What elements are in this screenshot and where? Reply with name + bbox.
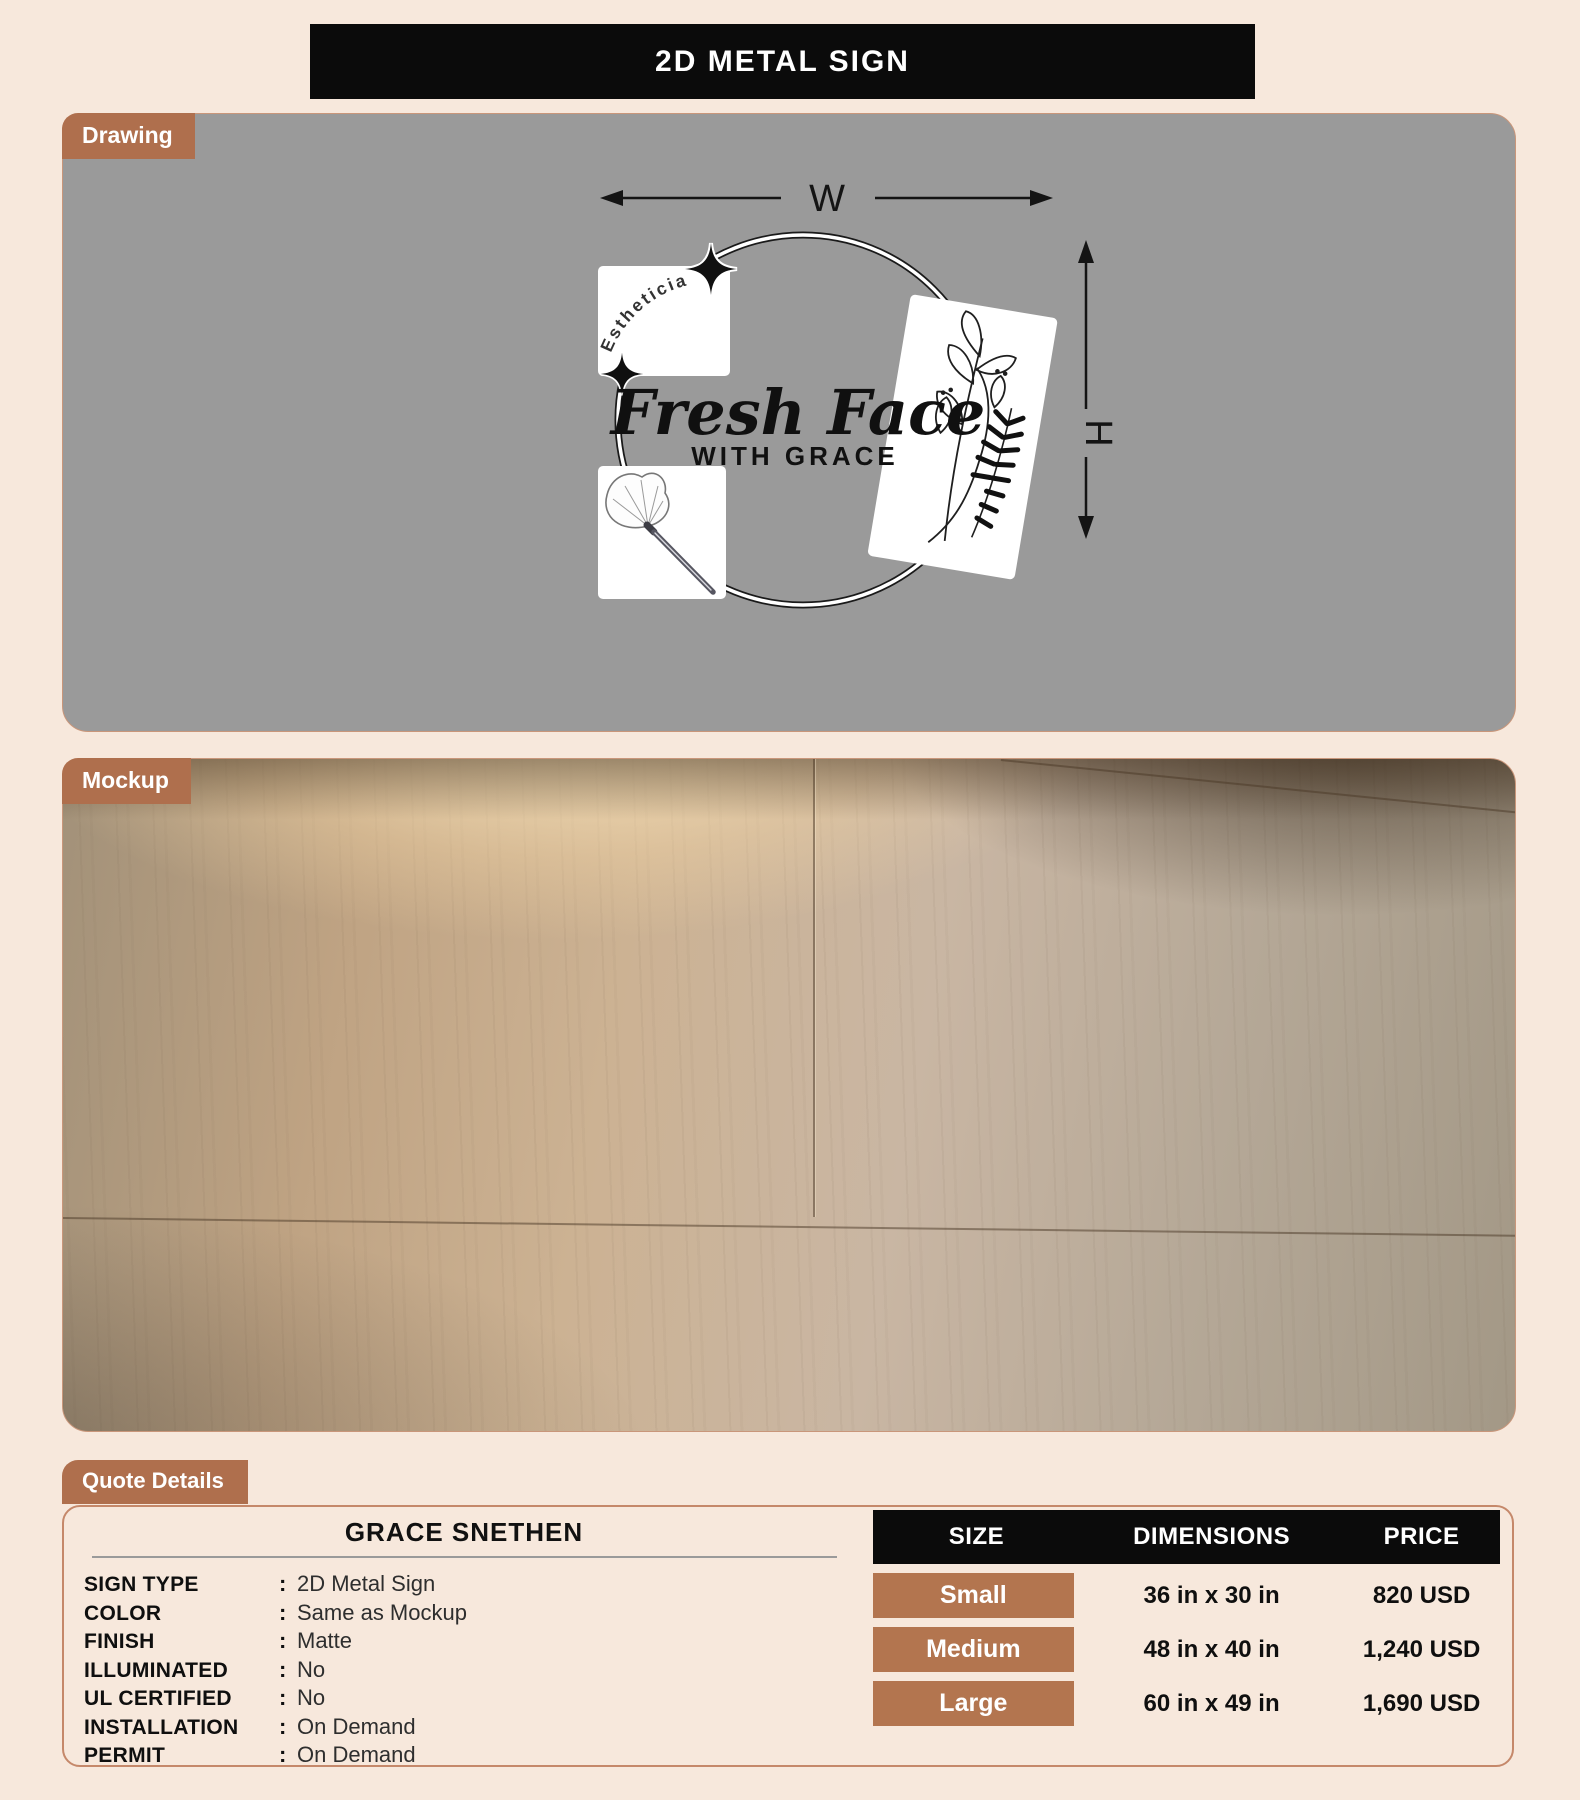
drawing-panel: W H (62, 113, 1516, 732)
detail-value: No (297, 1684, 844, 1712)
arrowhead-up-icon (1078, 240, 1094, 263)
size-button-medium[interactable]: Medium (873, 1627, 1074, 1672)
wall-seam-highlight (815, 759, 816, 1217)
mockup-panel (62, 758, 1516, 1432)
table-row: Large 60 in x 49 in 1,690 USD (873, 1681, 1500, 1726)
table-row: Medium 48 in x 40 in 1,240 USD (873, 1627, 1500, 1672)
detail-label: SIGN TYPE (84, 1571, 279, 1599)
arrowhead-left-icon (600, 190, 623, 206)
tab-quote-details: Quote Details (62, 1460, 248, 1504)
detail-colon: : (279, 1684, 297, 1712)
column-header-price: PRICE (1343, 1510, 1500, 1564)
detail-value: On Demand (297, 1741, 844, 1769)
detail-colon: : (279, 1627, 297, 1655)
detail-value: No (297, 1656, 844, 1684)
dimensions-cell: 48 in x 40 in (1080, 1627, 1343, 1672)
detail-value: Same as Mockup (297, 1599, 844, 1627)
tab-drawing: Drawing (62, 113, 195, 159)
arrowhead-right-icon (1030, 190, 1053, 206)
column-header-size: SIZE (873, 1510, 1080, 1564)
size-button-small[interactable]: Small (873, 1573, 1074, 1618)
price-cell: 820 USD (1343, 1573, 1500, 1618)
price-cell: 1,240 USD (1343, 1627, 1500, 1672)
detail-label: ILLUMINATED (84, 1657, 279, 1685)
detail-colon: : (279, 1570, 297, 1598)
dimensions-cell: 60 in x 49 in (1080, 1681, 1343, 1726)
wall-seam-diagonal (1001, 759, 1516, 814)
detail-row: PERMIT : On Demand (84, 1741, 844, 1770)
detail-label: PERMIT (84, 1742, 279, 1770)
sign-logo-drawing (506, 165, 1058, 605)
quote-details-panel: GRACE SNETHEN SIGN TYPE : 2D Metal Sign … (62, 1505, 1514, 1767)
size-button-large[interactable]: Large (873, 1681, 1074, 1726)
customer-block: GRACE SNETHEN SIGN TYPE : 2D Metal Sign … (84, 1517, 844, 1770)
detail-label: FINISH (84, 1628, 279, 1656)
detail-value: On Demand (297, 1713, 844, 1741)
detail-colon: : (279, 1741, 297, 1769)
detail-colon: : (279, 1656, 297, 1684)
dimensions-cell: 36 in x 30 in (1080, 1573, 1343, 1618)
width-label: W (809, 178, 845, 220)
column-header-dimensions: DIMENSIONS (1080, 1510, 1343, 1564)
detail-colon: : (279, 1599, 297, 1627)
height-label: H (1077, 419, 1119, 446)
divider (92, 1556, 837, 1558)
detail-row: SIGN TYPE : 2D Metal Sign (84, 1570, 844, 1599)
table-row: Small 36 in x 30 in 820 USD (873, 1573, 1500, 1618)
detail-row: FINISH : Matte (84, 1627, 844, 1656)
tab-mockup: Mockup (62, 758, 191, 804)
pricing-table-header: SIZE DIMENSIONS PRICE (873, 1510, 1500, 1564)
wall-seam-horizontal (63, 1217, 1516, 1237)
detail-row: COLOR : Same as Mockup (84, 1599, 844, 1628)
drawing-canvas: W H (63, 114, 1516, 731)
detail-row: UL CERTIFIED : No (84, 1684, 844, 1713)
arrowhead-down-icon (1078, 516, 1094, 539)
customer-name: GRACE SNETHEN (84, 1517, 844, 1548)
detail-row: ILLUMINATED : No (84, 1656, 844, 1685)
detail-colon: : (279, 1713, 297, 1741)
pricing-table: SIZE DIMENSIONS PRICE Small 36 in x 30 i… (873, 1510, 1500, 1726)
page-title: 2D METAL SIGN (310, 24, 1255, 99)
price-cell: 1,690 USD (1343, 1681, 1500, 1726)
detail-value: 2D Metal Sign (297, 1570, 844, 1598)
detail-label: UL CERTIFIED (84, 1685, 279, 1713)
detail-row: INSTALLATION : On Demand (84, 1713, 844, 1742)
detail-label: INSTALLATION (84, 1714, 279, 1742)
detail-value: Matte (297, 1627, 844, 1655)
detail-label: COLOR (84, 1600, 279, 1628)
